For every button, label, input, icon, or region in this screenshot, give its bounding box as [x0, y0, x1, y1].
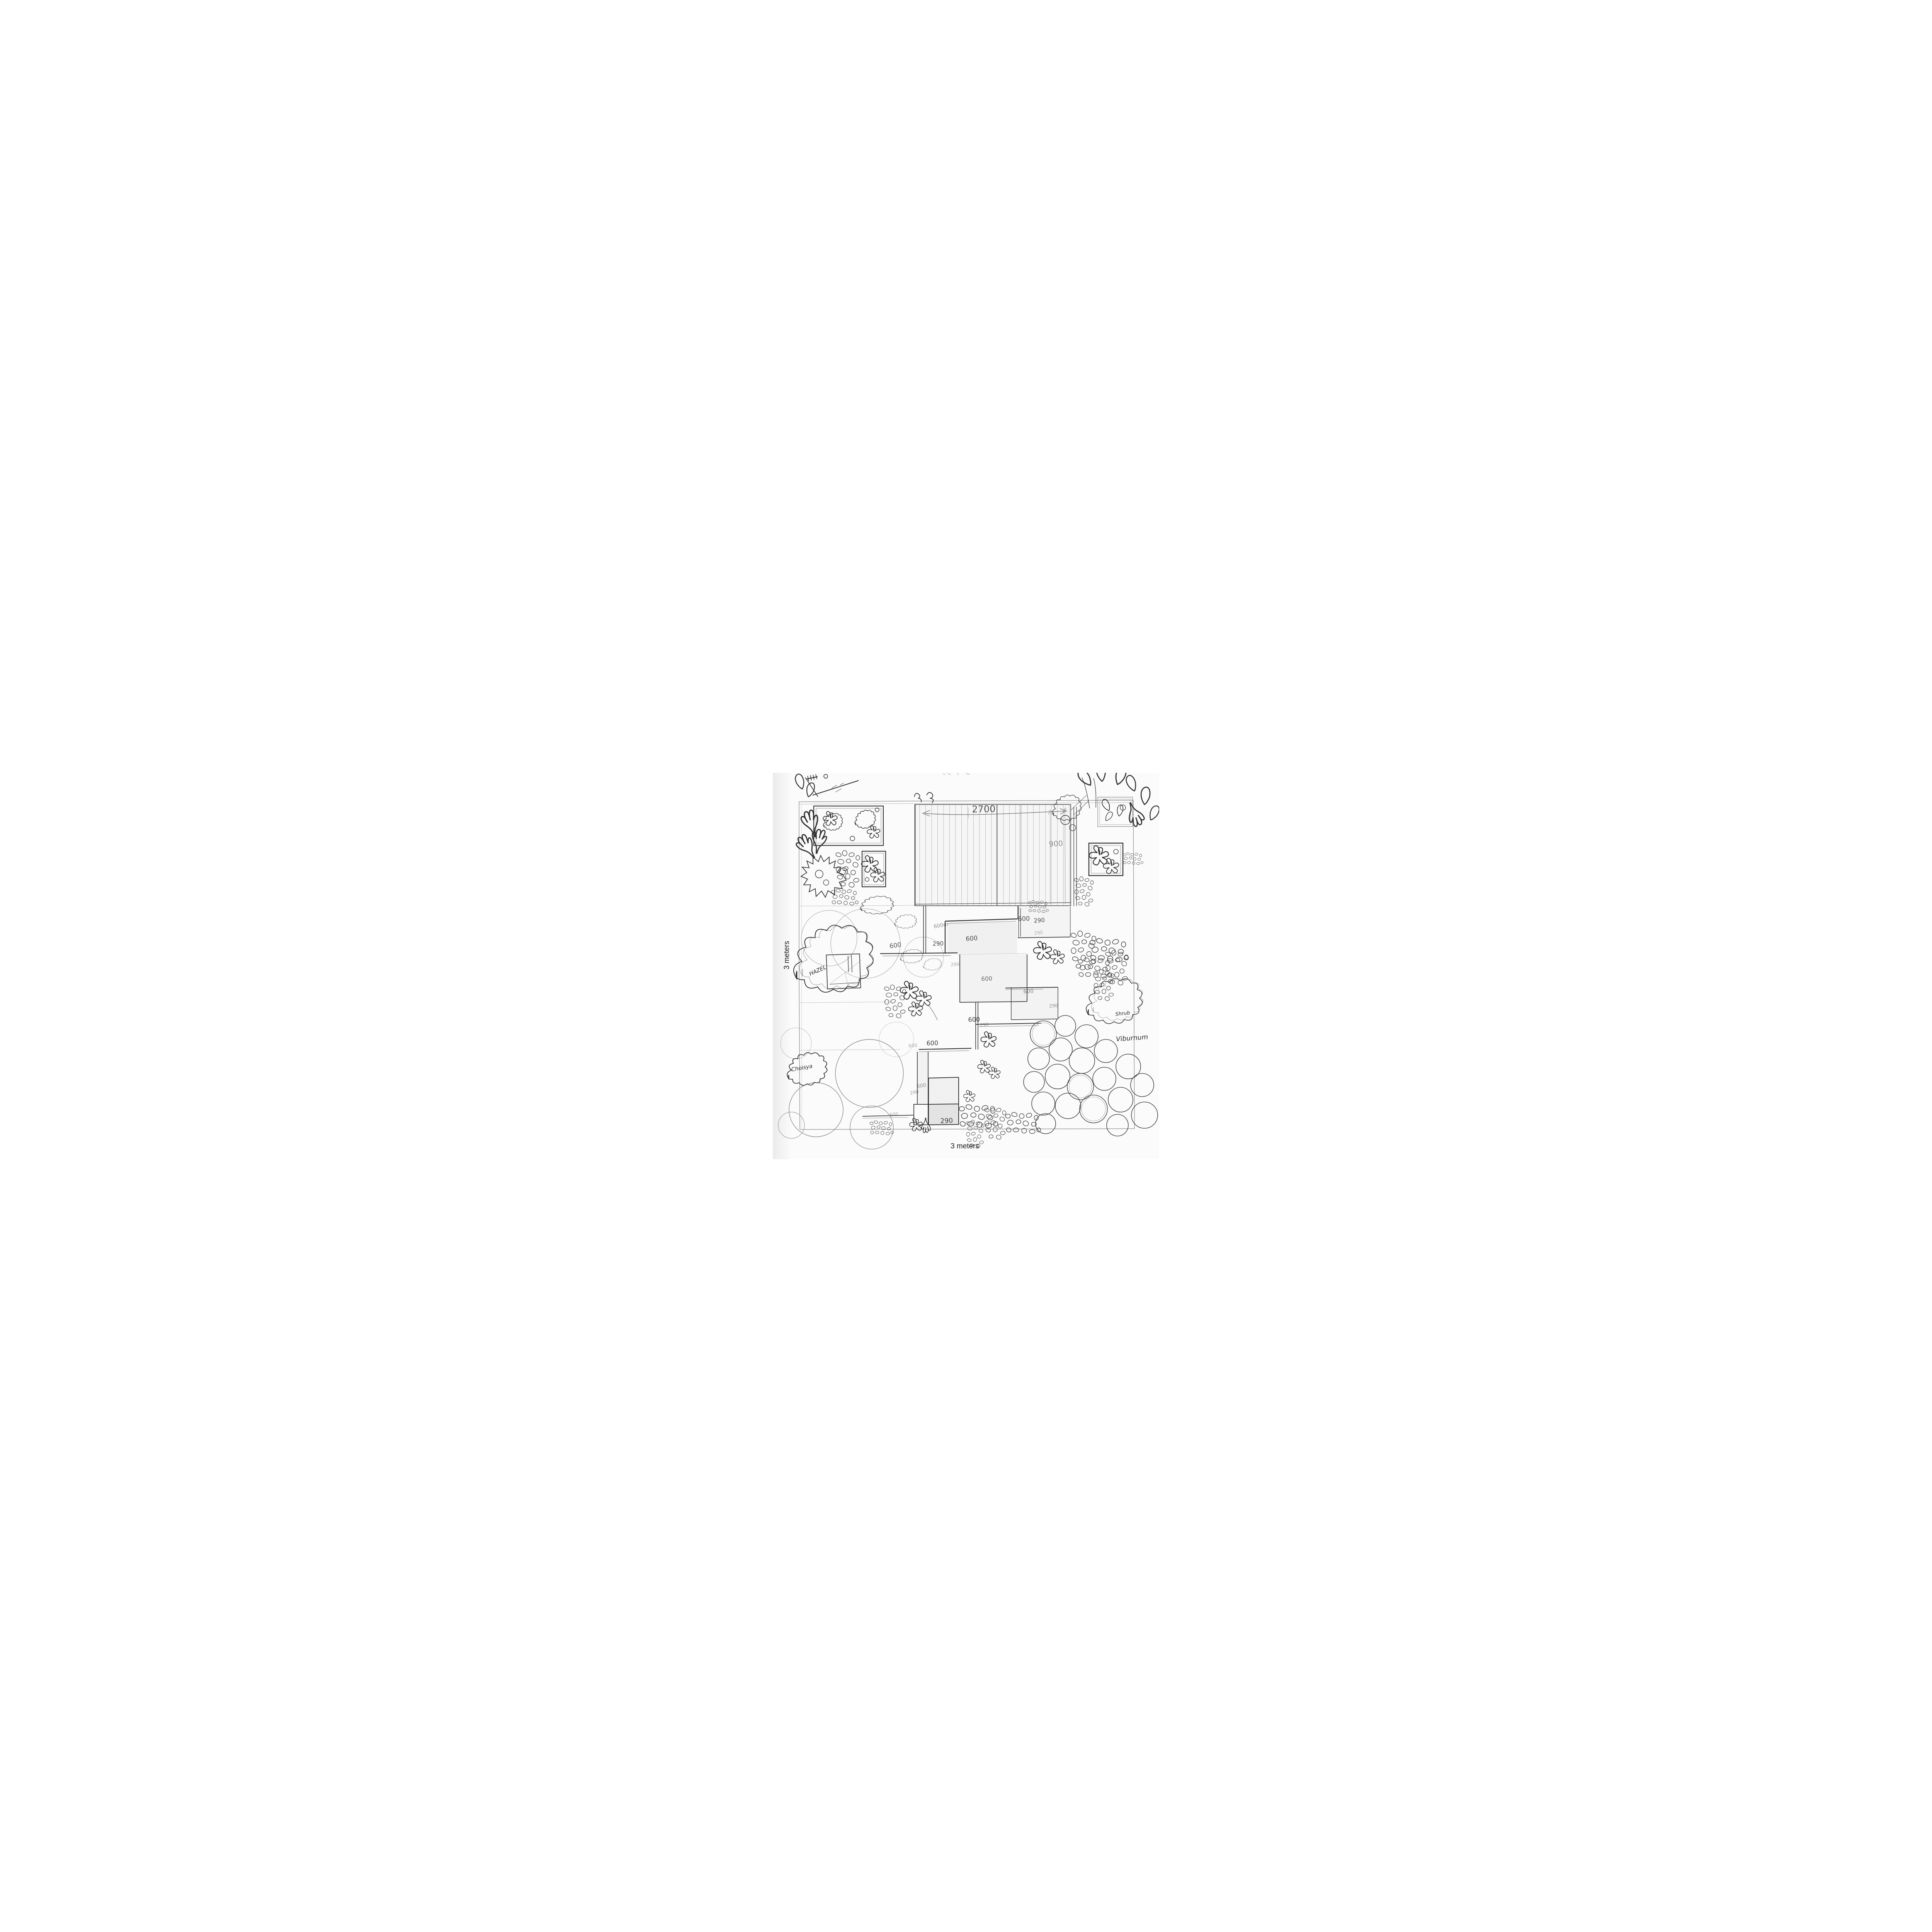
deck-plank-lines — [915, 804, 1071, 906]
dimension-label: 290 — [1034, 917, 1045, 924]
decking — [915, 804, 1071, 906]
garden-plan-sketch: 2700900600m60029060060029029029060060029… — [773, 773, 1159, 1159]
dimension-label: 600 — [908, 1043, 918, 1049]
dimension-label: 600 — [1023, 988, 1034, 995]
dimension-label: 2700 — [972, 803, 996, 815]
dimension-label: 600 — [966, 934, 978, 942]
sketch-sheet: 2700900600m60029060060029029029060060029… — [773, 773, 1159, 1159]
dimension-label: 290 — [1049, 1003, 1058, 1009]
dimension-label: 600 — [981, 975, 992, 983]
axis-label-bottom: 3 meters — [951, 1142, 979, 1150]
dimension-label: 290 — [980, 1022, 989, 1028]
axis-label-left: 3 meters — [783, 941, 791, 969]
dimension-label: 290 — [1034, 930, 1043, 936]
dimension-label: 600 — [1018, 915, 1030, 922]
dimension-label: 600 — [889, 1111, 898, 1117]
dimension-label: 600 — [926, 1039, 938, 1047]
dimension-label: 290 — [940, 1117, 953, 1125]
dimension-label: 900 — [1049, 839, 1063, 849]
dimension-label: 600 — [968, 1015, 980, 1023]
dimension-label: 290 — [932, 940, 944, 947]
dimension-label: 290 — [951, 961, 960, 968]
